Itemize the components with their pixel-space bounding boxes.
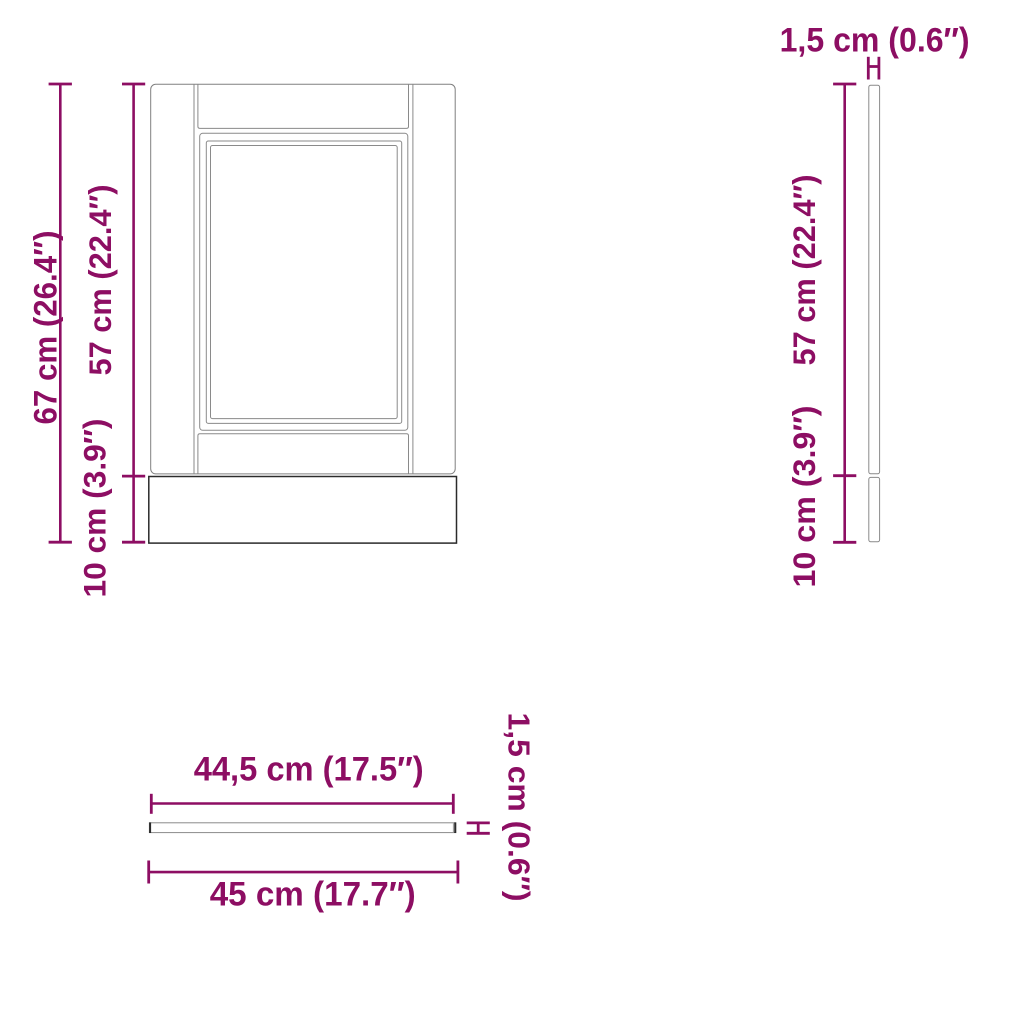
- svg-text:10 cm (3.9″): 10 cm (3.9″): [786, 406, 822, 588]
- svg-text:1,5 cm (0.6″): 1,5 cm (0.6″): [780, 22, 970, 60]
- svg-text:1,5 cm (0.6″): 1,5 cm (0.6″): [502, 713, 537, 902]
- svg-text:45 cm (17.7″): 45 cm (17.7″): [210, 875, 416, 913]
- svg-text:67 cm (26.4″): 67 cm (26.4″): [28, 231, 64, 425]
- svg-text:44,5 cm (17.5″): 44,5 cm (17.5″): [194, 750, 424, 788]
- svg-text:10 cm (3.9″): 10 cm (3.9″): [77, 419, 113, 598]
- svg-text:57 cm (22.4″): 57 cm (22.4″): [786, 175, 822, 366]
- svg-text:57 cm (22.4″): 57 cm (22.4″): [82, 185, 118, 376]
